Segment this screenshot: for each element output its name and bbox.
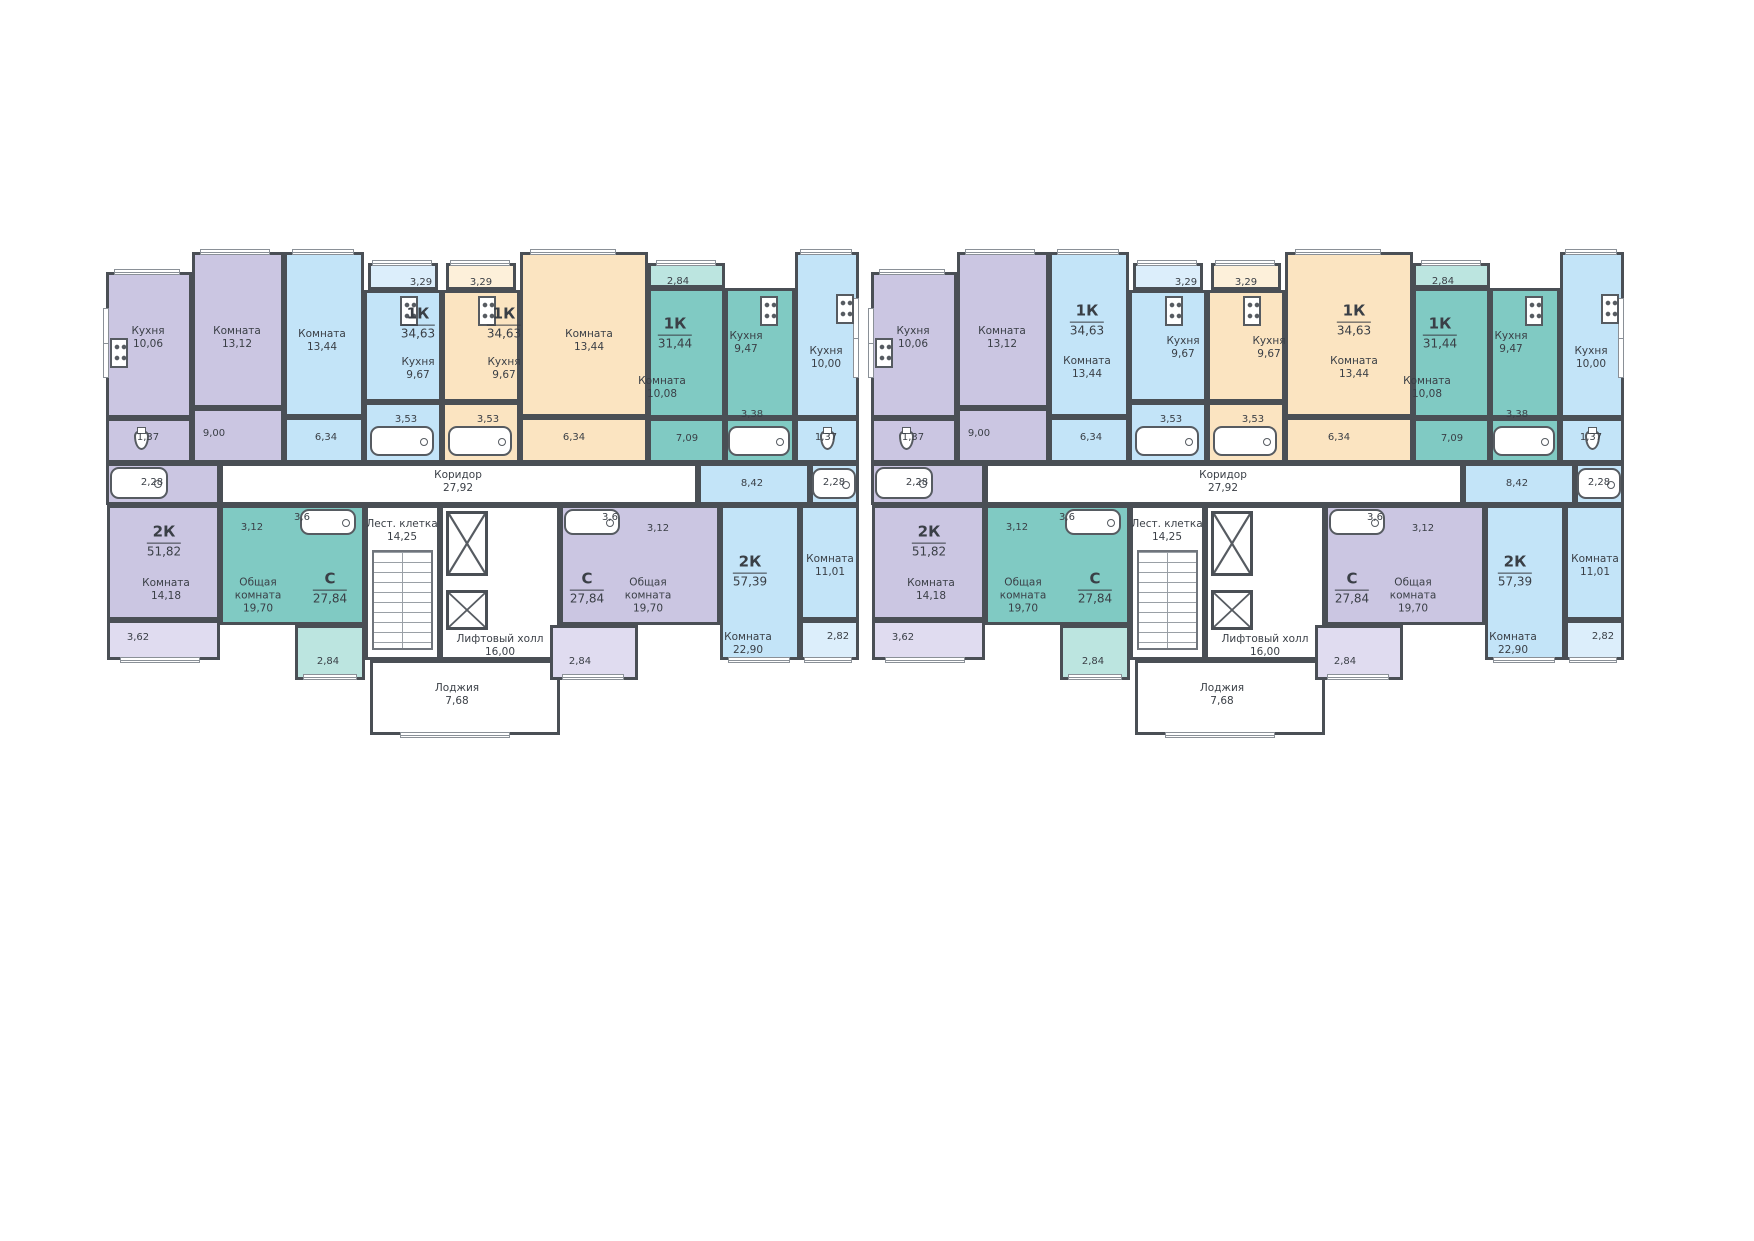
label: 2,28 xyxy=(823,477,845,490)
floor-plan-canvas: Кухня 10,06Комната 13,123,293,293,533,53… xyxy=(0,0,1754,1241)
window-strip xyxy=(1493,657,1555,663)
elevator-shaft-1 xyxy=(1211,511,1253,576)
label: Кухня 9,47 xyxy=(729,330,762,356)
label: Комната 10,08 xyxy=(638,375,686,401)
label: 3,29 xyxy=(1175,277,1197,290)
label: Лоджия 7,68 xyxy=(435,682,479,708)
window-strip xyxy=(1137,260,1197,266)
label: 2К51,82 xyxy=(147,523,181,560)
label: Кухня 10,06 xyxy=(896,325,929,351)
window-strip xyxy=(1057,249,1119,255)
label: 3,62 xyxy=(127,632,149,645)
label: Кухня 9,67 xyxy=(401,356,434,382)
label: 6,34 xyxy=(1080,432,1102,445)
label: Комната 11,01 xyxy=(1571,553,1619,579)
label: Комната 14,18 xyxy=(142,577,190,603)
window-strip xyxy=(114,269,180,275)
label: 3,53 xyxy=(477,414,499,427)
label: 1К34,63 xyxy=(401,305,435,342)
label: 7,09 xyxy=(1441,433,1463,446)
window-strip xyxy=(562,674,624,680)
label: С27,84 xyxy=(1078,570,1112,607)
label: 2,84 xyxy=(1432,276,1454,289)
label: Комната 13,12 xyxy=(978,325,1026,351)
label: 2,84 xyxy=(317,656,339,669)
label: 2,84 xyxy=(569,656,591,669)
balcony-2-84-left xyxy=(295,625,365,680)
window-strip xyxy=(965,249,1035,255)
window-strip xyxy=(292,249,354,255)
tub-icon xyxy=(1493,426,1555,456)
label: 7,09 xyxy=(676,433,698,446)
label: Кухня 10,00 xyxy=(1574,345,1607,371)
label: Кухня 9,67 xyxy=(487,356,520,382)
label: 8,42 xyxy=(1506,478,1528,491)
label: 2,84 xyxy=(667,276,689,289)
label: 3,12 xyxy=(1006,522,1028,535)
label: Комната 10,08 xyxy=(1403,375,1451,401)
label: С27,84 xyxy=(570,570,604,607)
window-strip xyxy=(1215,260,1275,266)
label: Комната 14,18 xyxy=(907,577,955,603)
label: 2,28 xyxy=(906,477,928,490)
tub-icon xyxy=(728,426,790,456)
label: 1,37 xyxy=(137,432,159,445)
window-strip xyxy=(103,308,109,378)
label: 6,34 xyxy=(1328,432,1350,445)
label: 3,6 xyxy=(1367,512,1383,525)
label: Кухня 10,06 xyxy=(131,325,164,351)
stair-flight xyxy=(372,550,433,650)
label: Комната 11,01 xyxy=(806,553,854,579)
label: 3,53 xyxy=(1160,414,1182,427)
label: 6,34 xyxy=(315,432,337,445)
stove-icon xyxy=(875,338,893,368)
stove-icon xyxy=(1243,296,1261,326)
label: 2,28 xyxy=(141,477,163,490)
stove-icon xyxy=(836,294,854,324)
window-strip xyxy=(200,249,270,255)
label: Общая комната 19,70 xyxy=(1000,576,1047,615)
label: Комната 13,44 xyxy=(565,328,613,354)
tub-icon xyxy=(370,426,434,456)
window-strip xyxy=(1295,249,1381,255)
balcony-3-62 xyxy=(872,620,985,660)
label: Комната 22,90 xyxy=(1489,631,1537,657)
window-strip xyxy=(656,260,716,266)
label: Коридор 27,92 xyxy=(1199,469,1247,495)
label: 9,00 xyxy=(968,428,990,441)
window-strip xyxy=(800,249,852,255)
label: 3,6 xyxy=(1059,512,1075,525)
label: 3,62 xyxy=(892,632,914,645)
label: 2К51,82 xyxy=(912,523,946,560)
label: Кухня 9,67 xyxy=(1252,335,1285,361)
window-strip xyxy=(1569,657,1617,663)
label: Коридор 27,92 xyxy=(434,469,482,495)
label: 1К31,44 xyxy=(658,315,692,352)
stove-icon xyxy=(1601,294,1619,324)
stove-icon xyxy=(110,338,128,368)
label: 9,00 xyxy=(203,428,225,441)
window-strip xyxy=(1068,674,1122,680)
label: Общая комната 19,70 xyxy=(625,576,672,615)
floor-plan: Кухня 10,06Комната 13,123,293,293,533,53… xyxy=(100,238,1630,748)
elevator-shaft-2 xyxy=(1211,590,1253,630)
label: Лифтовый холл 16,00 xyxy=(1222,633,1309,659)
window-strip xyxy=(1421,260,1481,266)
label: Комната 13,44 xyxy=(298,328,346,354)
section-1: Кухня 10,06Комната 13,123,293,293,533,53… xyxy=(100,238,865,748)
label: 1К34,63 xyxy=(1337,302,1371,339)
stair-flight xyxy=(1137,550,1198,650)
label: 6,34 xyxy=(563,432,585,445)
label: 1,37 xyxy=(1580,432,1602,445)
kitchen-10-00 xyxy=(1560,252,1624,418)
label: 8,42 xyxy=(741,478,763,491)
window-strip xyxy=(372,260,432,266)
window-strip xyxy=(400,732,510,738)
label: 2,82 xyxy=(1592,631,1614,644)
label: 3,53 xyxy=(1242,414,1264,427)
label: Лифтовый холл 16,00 xyxy=(457,633,544,659)
label: Лест. клетка 14,25 xyxy=(1131,518,1202,544)
label: 3,29 xyxy=(470,277,492,290)
label: Кухня 9,67 xyxy=(1166,335,1199,361)
label: 3,12 xyxy=(1412,523,1434,536)
window-strip xyxy=(120,657,200,663)
label: 1К34,63 xyxy=(487,305,521,342)
elevator-shaft-1 xyxy=(446,511,488,576)
window-strip xyxy=(530,249,616,255)
label: Комната 22,90 xyxy=(724,631,772,657)
stove-icon xyxy=(1165,296,1183,326)
label: 3,38 xyxy=(741,409,763,422)
label: 2,84 xyxy=(1334,656,1356,669)
label: Общая комната 19,70 xyxy=(235,576,282,615)
label: 3,6 xyxy=(602,512,618,525)
window-strip xyxy=(885,657,965,663)
label: 3,12 xyxy=(241,522,263,535)
window-strip xyxy=(868,308,874,378)
kitchen-10-00 xyxy=(795,252,859,418)
window-strip xyxy=(1165,732,1275,738)
label: 2,82 xyxy=(827,631,849,644)
label: 1,37 xyxy=(902,432,924,445)
label: 3,38 xyxy=(1506,409,1528,422)
section-2: Кухня 10,06Комната 13,123,293,293,533,53… xyxy=(865,238,1630,748)
label: 3,6 xyxy=(294,512,310,525)
label: 1К34,63 xyxy=(1070,302,1104,339)
label: 3,12 xyxy=(647,523,669,536)
label: Комната 13,44 xyxy=(1063,355,1111,381)
balcony-2-84-left xyxy=(1060,625,1130,680)
label: Кухня 10,00 xyxy=(809,345,842,371)
label: 1К31,44 xyxy=(1423,315,1457,352)
label: Комната 13,44 xyxy=(1330,355,1378,381)
stove-icon xyxy=(1525,296,1543,326)
label: Лест. клетка 14,25 xyxy=(366,518,437,544)
label: 2,84 xyxy=(1082,656,1104,669)
label: 1,37 xyxy=(815,432,837,445)
window-strip xyxy=(879,269,945,275)
window-strip xyxy=(1565,249,1617,255)
label: 2К57,39 xyxy=(733,553,767,590)
label: 3,29 xyxy=(1235,277,1257,290)
window-strip xyxy=(728,657,790,663)
label: 2,28 xyxy=(1588,477,1610,490)
label: Лоджия 7,68 xyxy=(1200,682,1244,708)
balcony-2-84-right xyxy=(550,625,638,680)
label: Общая комната 19,70 xyxy=(1390,576,1437,615)
balcony-3-62 xyxy=(107,620,220,660)
label: 2К57,39 xyxy=(1498,553,1532,590)
label: Кухня 9,47 xyxy=(1494,330,1527,356)
stove-icon xyxy=(760,296,778,326)
label: Комната 13,12 xyxy=(213,325,261,351)
window-strip xyxy=(1327,674,1389,680)
window-strip xyxy=(804,657,852,663)
label: 3,53 xyxy=(395,414,417,427)
tub-icon xyxy=(448,426,512,456)
balcony-2-84-right xyxy=(1315,625,1403,680)
label: 3,29 xyxy=(410,277,432,290)
label: С27,84 xyxy=(1335,570,1369,607)
window-strip xyxy=(450,260,510,266)
tub-icon xyxy=(1213,426,1277,456)
window-strip xyxy=(303,674,357,680)
label: С27,84 xyxy=(313,570,347,607)
tub-icon xyxy=(1135,426,1199,456)
elevator-shaft-2 xyxy=(446,590,488,630)
